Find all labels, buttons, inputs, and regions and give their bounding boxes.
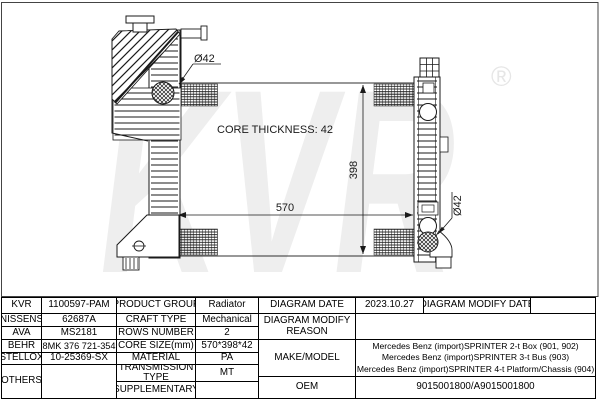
- brand-nissens: NISSENS: [2, 314, 42, 327]
- diagram-date-label: DIAGRAM DATE: [259, 298, 356, 314]
- supplementary-label: SUPPLEMENTARY: [117, 382, 196, 399]
- top-pipe: [181, 29, 203, 38]
- kvr-part-number: 1100597-PAM: [42, 298, 117, 314]
- modify-reason-value: [356, 314, 596, 340]
- filler-cap-icon: [126, 16, 154, 23]
- brand-others: OTHERS: [2, 365, 42, 399]
- craft-type-label: CRAFT TYPE: [117, 314, 196, 327]
- oem-label: OEM: [259, 377, 356, 399]
- inlet-diameter-label: Ø42: [194, 53, 215, 65]
- core-size-value: 570*398*42: [196, 340, 259, 353]
- stellox-part-number: 10-25369-SX: [42, 353, 117, 365]
- right-pin: [436, 257, 451, 268]
- brand-behr: BEHR: [2, 340, 42, 353]
- diagram-date-value: 2023.10.27: [356, 298, 424, 314]
- spec-table: KVR 1100597-PAM PRODUCT GROUP Radiator N…: [1, 297, 596, 399]
- right-port-top: [420, 104, 437, 121]
- craft-type-value: Mechanical: [196, 314, 259, 327]
- width-dimension-label: 570: [276, 202, 294, 214]
- product-group-label: PRODUCT GROUP: [117, 298, 196, 314]
- outlet-diameter-label: Ø42: [452, 195, 464, 216]
- radiator-diagram-svg: KVR ®: [0, 0, 600, 297]
- modify-reason-label: DIAGRAM MODIFY REASON: [259, 314, 356, 340]
- make-model-line-2: Mercedes Benz (import)SPRINTER 3-t Bus (…: [382, 352, 569, 364]
- make-model-line-3: Mercedes Benz (import)SPRINTER 4-t Platf…: [357, 364, 594, 376]
- height-dimension-label: 398: [348, 161, 360, 179]
- product-group-value: Radiator: [196, 298, 259, 314]
- ava-part-number: MS2181: [42, 327, 117, 340]
- core-thickness-label: CORE THICKNESS: 42: [217, 124, 333, 136]
- diagram-modify-date-label: DIAGRAM MODIFY DATE: [424, 298, 531, 314]
- oem-value: 9015001800/A9015001800: [356, 377, 596, 399]
- behr-part-number: 8MK 376 721-354: [42, 340, 117, 353]
- others-part-number: [42, 365, 117, 399]
- supplementary-value: [196, 382, 259, 399]
- transmission-type-value: MT: [196, 365, 259, 382]
- make-model-label: MAKE/MODEL: [259, 340, 356, 377]
- top-bracket: [420, 58, 439, 78]
- brand-ava: AVA: [2, 327, 42, 340]
- brand-kvr: KVR: [2, 298, 42, 314]
- rows-number-label: ROWS NUMBER: [117, 327, 196, 340]
- fin-band-bottom-right: [374, 229, 414, 255]
- material-label: MATERIAL: [117, 353, 196, 365]
- make-model-value: Mercedes Benz (import)SPRINTER 2-t Box (…: [356, 340, 596, 377]
- fin-band-top-right: [374, 84, 414, 106]
- nissens-part-number: 62687A: [42, 314, 117, 327]
- registered-trademark-icon: ®: [491, 61, 512, 92]
- material-value: PA: [196, 353, 259, 365]
- core-size-label: CORE SIZE(mm): [117, 340, 196, 353]
- fin-band-bottom-left: [178, 229, 218, 255]
- make-model-line-1: Mercedes Benz (import)SPRINTER 2-t Box (…: [372, 341, 578, 353]
- transmission-type-label: TRANSMISSION TYPE: [117, 365, 196, 382]
- fin-band-top-left: [178, 84, 218, 106]
- brand-stellox: STELLOX: [2, 353, 42, 365]
- side-tab: [440, 137, 448, 152]
- diagram-modify-date-value: [531, 298, 596, 314]
- rows-number-value: 2: [196, 327, 259, 340]
- catalog-page: KVR ®: [0, 0, 600, 402]
